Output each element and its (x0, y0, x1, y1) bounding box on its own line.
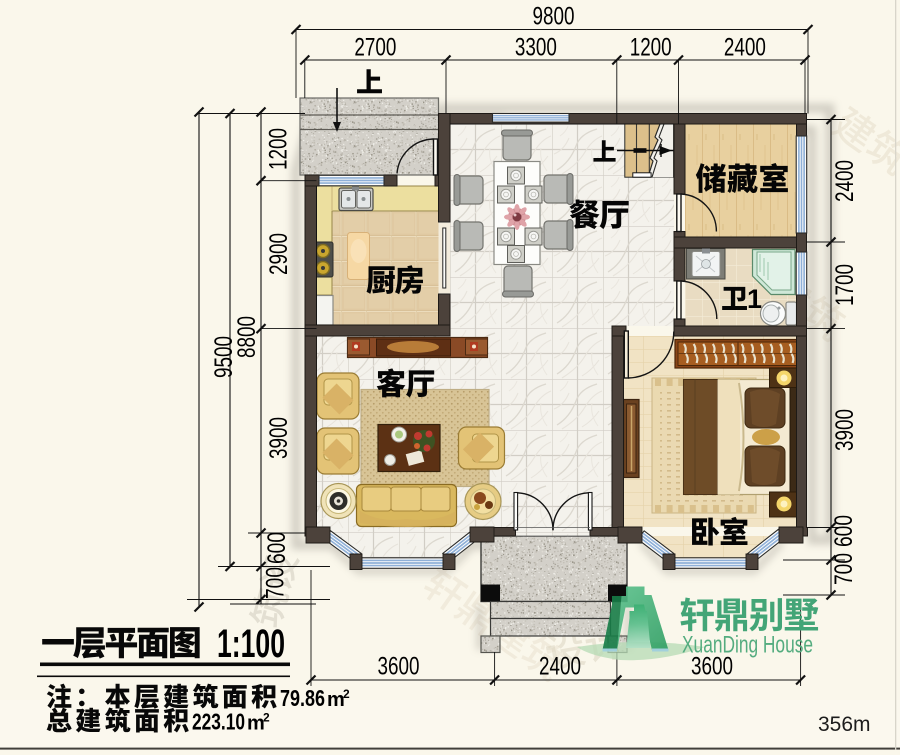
svg-text:700: 700 (830, 553, 858, 585)
svg-text:2400: 2400 (539, 653, 581, 681)
svg-text:9500: 9500 (210, 336, 238, 378)
svg-text:2: 2 (263, 711, 270, 725)
svg-text:2700: 2700 (354, 34, 396, 62)
svg-text:3900: 3900 (831, 409, 859, 451)
svg-text:1200: 1200 (265, 128, 293, 170)
svg-text:3600: 3600 (378, 653, 420, 681)
svg-text:1: 1 (747, 284, 762, 314)
svg-text:9800: 9800 (533, 3, 575, 31)
svg-text:3900: 3900 (265, 417, 293, 459)
svg-text:223.10: 223.10 (192, 709, 245, 735)
svg-text:3300: 3300 (515, 34, 557, 62)
svg-text:2900: 2900 (265, 233, 293, 275)
svg-text:1:100: 1:100 (217, 622, 285, 666)
svg-text:2400: 2400 (724, 34, 766, 62)
svg-text:600: 600 (830, 515, 858, 547)
svg-text:79.86: 79.86 (280, 685, 325, 711)
svg-text:356m: 356m (818, 713, 871, 736)
svg-text:2: 2 (343, 687, 350, 701)
svg-text:600: 600 (263, 532, 291, 564)
svg-text:1200: 1200 (630, 34, 672, 62)
svg-text:2400: 2400 (831, 160, 859, 202)
svg-text:700: 700 (262, 567, 290, 599)
svg-text:XuanDing House: XuanDing House (682, 632, 813, 659)
svg-text:1700: 1700 (831, 264, 859, 306)
